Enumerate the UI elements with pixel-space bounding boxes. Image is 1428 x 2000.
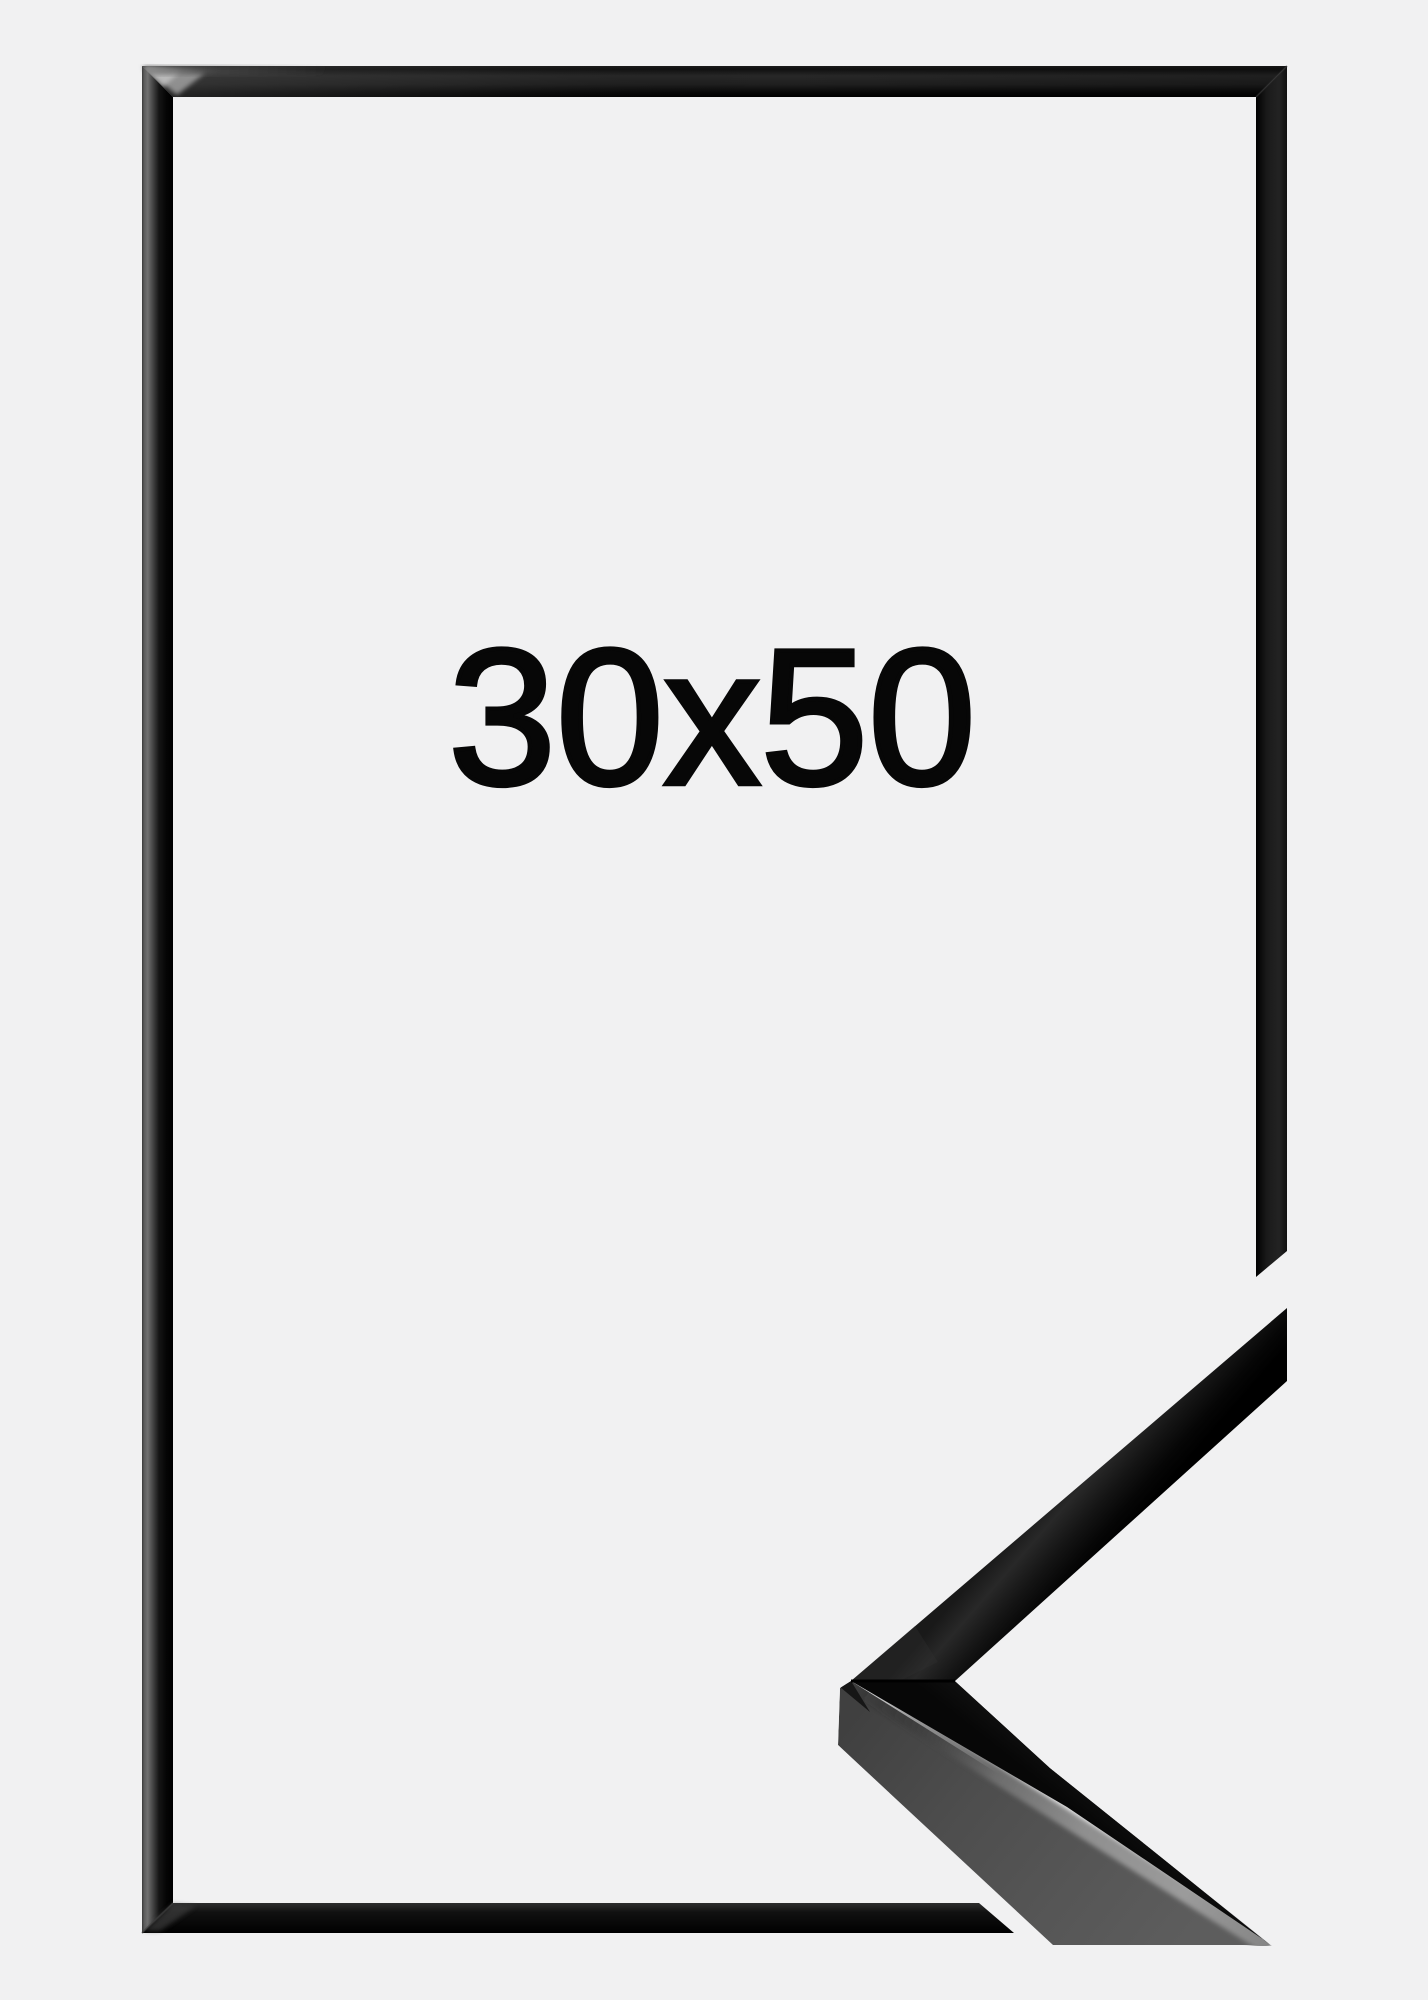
- svg-text:30x50: 30x50: [448, 609, 976, 826]
